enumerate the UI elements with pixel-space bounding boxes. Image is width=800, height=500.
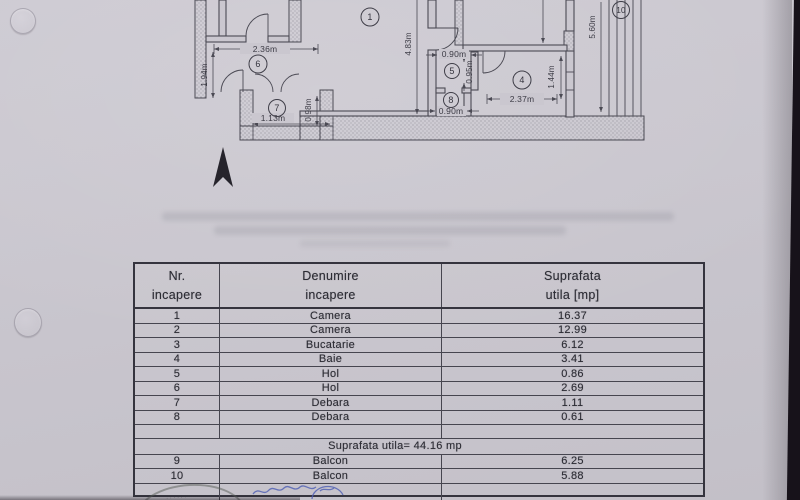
table-row: 4Baie3.41 [135,353,703,368]
cell-name: Balcon [220,455,442,469]
room-7-number: 7 [274,103,279,113]
cell-name: Camera [220,309,442,323]
dim-room6-depth: 1.94m [200,63,209,86]
room-6-number: 6 [255,59,260,69]
table-row: 1Camera16.37 [135,309,703,324]
table-body-balcony: 9Balcon6.2510Balcon5.88 [135,455,703,484]
paper-bottom-shadow [0,495,300,500]
dim-room7-width: 1.13m [261,113,286,123]
room-1-number: 1 [367,12,372,22]
table-row: 3Bucatarie6.12 [135,338,703,353]
punch-hole [14,308,42,337]
table-row: 7Debara1.11 [135,396,703,411]
table-row: 5Hol0.86 [135,367,703,382]
cell-area: 1.11 [442,396,703,410]
cell-name: Baie [220,353,442,367]
cell-nr: 1 [135,309,220,323]
empty-cell [135,425,220,438]
header-text: Suprafata [544,267,601,285]
total-area-text: Suprafata utila= 44.16 mp [328,440,462,452]
table-row: 9Balcon6.25 [135,455,703,470]
header-nr-incapere: Nr. incapere [135,264,220,307]
dim-room1-depth: 4.83m [404,32,413,55]
table-row: 8Debara0.61 [135,411,703,426]
empty-row [135,425,703,439]
cell-area: 3.41 [442,353,703,367]
room-8-number: 8 [448,95,453,105]
cell-area: 5.88 [442,469,703,483]
cell-area: 6.12 [442,338,703,352]
ink-bleed-through [162,212,674,221]
table-row: 6Hol2.69 [135,382,703,397]
table-row: 10Balcon5.88 [135,469,703,484]
cell-name: Bucatarie [220,338,442,352]
dim-room6-width: 2.36m [253,44,278,54]
cell-name: Camera [220,324,442,338]
cell-nr: 5 [135,367,220,381]
dim-room5-depth: 0.95m [465,60,474,83]
cell-nr: 2 [135,324,220,338]
dim-balcony-length: 5.60m [588,15,597,38]
room-4-number: 4 [519,75,524,85]
ink-bleed-through [300,240,450,247]
cell-name: Hol [220,382,442,396]
floor-plan: 2.36m 1.94m 4.83m 1.13m 0.98m 0.90m 0.95… [185,0,660,192]
cell-area: 0.86 [442,367,703,381]
cell-nr: 7 [135,396,220,410]
header-text: Nr. [169,267,186,285]
scanned-document-page: 2.36m 1.94m 4.83m 1.13m 0.98m 0.90m 0.95… [0,0,800,500]
total-row: Suprafata utila= 44.16 mp [135,439,703,455]
room-10-number: 10 [616,6,626,15]
cell-nr: 4 [135,353,220,367]
empty-cell [220,425,442,438]
header-text: Denumire [302,267,359,285]
dimension-labels: 2.36m 1.94m 4.83m 1.13m 0.98m 0.90m 0.95… [200,15,597,123]
ink-bleed-through [214,226,566,235]
empty-cell [442,425,703,438]
cell-nr: 3 [135,338,220,352]
cell-name: Hol [220,367,442,381]
dim-room4-depth: 1.44m [547,65,556,88]
cell-name: Debara [220,411,442,425]
dim-room7-depth: 0.98m [304,98,313,121]
header-text: utila [mp] [546,286,600,304]
cell-area: 16.37 [442,309,703,323]
empty-cell [442,484,703,500]
dimension-lines [213,0,601,126]
header-text: incapere [152,286,202,304]
north-arrow-icon [213,147,233,187]
table-row: 2Camera12.99 [135,324,703,339]
header-text: incapere [305,286,355,304]
paper-edge-shadow [762,0,792,500]
cell-area: 12.99 [442,324,703,338]
cell-name: Debara [220,396,442,410]
cell-area: 2.69 [442,382,703,396]
dim-room5-width: 0.90m [442,49,467,59]
header-denumire-incapere: Denumire incapere [220,264,442,307]
cell-nr: 8 [135,411,220,425]
cell-area: 0.61 [442,411,703,425]
dim-room4-width: 2.37m [510,94,535,104]
cell-area: 6.25 [442,455,703,469]
room-5-number: 5 [449,66,454,76]
table-body-main: 1Camera16.372Camera12.993Bucatarie6.124B… [135,309,703,425]
header-suprafata-utila: Suprafata utila [mp] [442,264,703,307]
table-header-row: Nr. incapere Denumire incapere Suprafata… [135,264,703,309]
cell-nr: 10 [135,469,220,483]
punch-hole [10,8,36,34]
cell-nr: 9 [135,455,220,469]
area-table: Nr. incapere Denumire incapere Suprafata… [133,262,705,497]
cell-nr: 6 [135,382,220,396]
